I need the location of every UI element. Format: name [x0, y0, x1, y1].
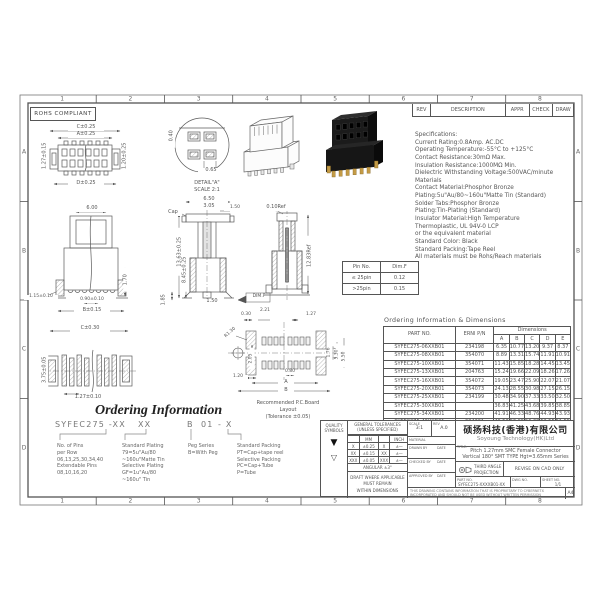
- table-cell: SYFEC275-30XXB01: [384, 402, 456, 410]
- table-cell: 354071: [455, 360, 494, 368]
- dim-label: D±0.25: [68, 181, 104, 187]
- dim-label: 1.50: [200, 299, 224, 305]
- table-cell: 10.77: [509, 343, 524, 351]
- title-label: TITLE:: [457, 445, 467, 449]
- dim-label: C±0.25: [68, 125, 104, 131]
- grid-label: 8: [538, 96, 542, 103]
- table-cell: 39.85: [540, 402, 555, 410]
- table-cell: 22.07: [540, 377, 555, 385]
- table-cell: 21.07: [555, 377, 570, 385]
- dim-label: 1.70: [123, 268, 129, 292]
- quality-open-triangle-icon: ▽: [331, 453, 337, 462]
- text-line: ~160u"Matte Tin: [122, 457, 188, 464]
- angular-tolerance: ANGULAR ±3°: [348, 464, 407, 472]
- approved-by-label: APPROVED BY: [409, 474, 433, 478]
- disclaimer-line2: INCORPORATED AND SHOULD NOT BE USED WITH…: [410, 493, 573, 497]
- table-cell: [455, 402, 494, 410]
- dim-label: 12.83Ref: [307, 236, 313, 276]
- text-line: Standard Color: Black: [415, 239, 575, 247]
- text-line: WITHIN DIMENSIONS: [348, 488, 407, 494]
- table-cell: 0.12: [381, 273, 419, 284]
- table-cell: 8.37: [555, 343, 570, 351]
- table-row: SYFEC275-06XXB012341986.3510.7713.209.37…: [384, 343, 571, 351]
- dim-label: 3.75±0.05: [42, 348, 48, 392]
- table-cell: ±0.05: [359, 457, 378, 464]
- text-line: 08,10,16,20: [57, 470, 121, 477]
- ordering-brackets: [60, 429, 241, 440]
- scale-cell: SCALE 3:1: [408, 421, 432, 437]
- rohs-compliant-badge: ROHS COMPLIANT: [30, 107, 96, 121]
- drawn-by-cell: DRAWN BY DATE: [408, 445, 456, 459]
- table-cell: SYFEC275-13XXB01: [384, 368, 456, 376]
- dim-label: 1.27±0.10: [68, 395, 108, 401]
- text-line: Extendable Pins: [57, 463, 121, 470]
- table-cell: 24.13: [494, 385, 509, 393]
- approval-column: SCALE 3:1 REV A.0 MATERIAL DRAWN BY DATE…: [408, 421, 456, 487]
- table-cell: 37.33: [525, 394, 540, 402]
- table-cell: X: [348, 443, 359, 450]
- table-cell: 28.55: [509, 385, 524, 393]
- table-cell: 13.31: [509, 352, 524, 360]
- quality-header-2: SYMBOLS: [321, 428, 347, 433]
- table-cell: 354073: [455, 385, 494, 393]
- specifications-block: Specifications:Current Rating:0.8Amp. AC…: [415, 132, 575, 262]
- grid-label: C: [22, 346, 26, 353]
- drawing-sheet: ROHS COMPLIANT REV DESCRIPTION APPR CHEC…: [0, 0, 600, 600]
- table-cell: 19.66: [509, 368, 524, 376]
- dim-label: 2.05: [250, 347, 255, 369]
- part-no-header: PART NO.: [384, 327, 456, 344]
- table-cell: SYFEC275-06XXB01: [384, 343, 456, 351]
- table-cell: 27.15: [540, 385, 555, 393]
- dim-col-d: D: [540, 335, 555, 343]
- view-iso-wireframe: [244, 116, 299, 176]
- grid-label: 4: [265, 498, 269, 505]
- dim-label: 1.85: [161, 287, 167, 313]
- table-cell: 26.15: [555, 385, 570, 393]
- text-line: Insulator Material:High Temperature: [415, 216, 575, 224]
- dimf-flag-label: DIM.F: [247, 295, 271, 300]
- dim-label: 2.21: [255, 309, 275, 314]
- text-line: Selective Packing: [237, 457, 307, 464]
- grid-label: 1: [60, 498, 64, 505]
- dims-table-title: Ordering Information & Dimensions: [384, 317, 506, 324]
- inch-header: INCH: [390, 436, 408, 443]
- table-cell: ±—: [390, 443, 408, 450]
- checked-by-cell: CHECKED BY DATE: [408, 459, 456, 473]
- table-cell: X: [378, 443, 390, 450]
- table-cell: 34.90: [509, 394, 524, 402]
- dim-label: 0.65: [198, 168, 224, 174]
- rev-header: REV: [413, 104, 431, 116]
- grid-label: C: [576, 346, 580, 353]
- table-cell: 14.45: [540, 360, 555, 368]
- erni-pn-header: ERNI P/N: [455, 327, 494, 344]
- quality-solid-triangle-icon: ▼: [331, 438, 338, 448]
- draw-header: DRAW: [553, 104, 573, 116]
- dim-label: 1.50: [224, 206, 246, 211]
- tolerances-cell: GENERAL TOLERANCES (UNLESS SPECIFIED) MM…: [348, 421, 408, 498]
- table-cell: 6.35: [494, 343, 509, 351]
- grid-label: B: [22, 247, 26, 254]
- dim-label: 1.20±0.25: [122, 137, 128, 175]
- tolerance-table: MM INCH X±0.25X±—XX±0.15XX±—XXX±0.05XXX±…: [348, 435, 408, 464]
- pin-col-header: Pin No.: [343, 262, 381, 273]
- table-cell: 0.15: [381, 284, 419, 295]
- text-line: Contact Material:Phosphor Bronze: [415, 185, 575, 193]
- table-cell: 9.37: [540, 343, 555, 351]
- dwg-no-label: DWG NO.: [512, 478, 528, 482]
- ordering-code-base: SYFEC275 -XX: [55, 420, 126, 429]
- table-cell: 8.89: [494, 352, 509, 360]
- material-label: MATERIAL: [409, 438, 426, 442]
- table-cell: SYFEC275-16XXB01: [384, 377, 456, 385]
- grid-label: 6: [401, 498, 405, 505]
- date-label: DATE: [437, 446, 446, 450]
- dim-label: B±0.15: [74, 308, 110, 314]
- dim-label: 0.30: [236, 313, 256, 318]
- ordering-block-packing: Standard PackingPT=Cap+tape reelSelectiv…: [237, 443, 307, 477]
- text-line: Plating:5u"Au/80~160u"Matte Tin (Standar…: [415, 193, 575, 201]
- table-cell: 11.43: [494, 360, 509, 368]
- table-cell: XXX: [378, 457, 390, 464]
- part-dimensions-table: PART NO. ERNI P/N Dimensions A B C D E S…: [383, 326, 571, 428]
- revise-note: REVISE ON CAD ONLY: [504, 462, 575, 477]
- table-row: ≤ 25pin0.12: [343, 273, 419, 284]
- dim-label: A±0.25: [68, 132, 104, 138]
- view-detail-a: [175, 118, 229, 172]
- text-line: Solder Tabs:Phosphor Bronze: [415, 201, 575, 209]
- dim-col-a: A: [494, 335, 509, 343]
- dim-label: 6.50: [190, 197, 228, 203]
- text-line: Contact Resistance:30mΩ Max.: [415, 155, 575, 163]
- table-cell: 10.91: [555, 352, 570, 360]
- ordering-code-series: B: [187, 420, 194, 429]
- grid-label: 1: [60, 96, 64, 103]
- revision-strip: REV DESCRIPTION APPR CHECK DRAW: [412, 104, 574, 117]
- dimf-col-header: Dim.F: [381, 262, 419, 273]
- detail-a-scale: SCALE 2:1: [186, 188, 228, 194]
- text-line: B=With Peg: [188, 450, 242, 457]
- dim-label: 5.50: [343, 345, 348, 367]
- table-cell: 30.98: [525, 385, 540, 393]
- grid-label: 7: [470, 96, 474, 103]
- ordering-code-packing: - X: [218, 420, 233, 429]
- table-row: SYFEC275-13XXB0120476315.2419.6622.0918.…: [384, 368, 571, 376]
- text-line: Standard Packing:Tape Reel: [415, 247, 575, 255]
- table-cell: ±—: [390, 450, 408, 457]
- table-cell: 36.83: [494, 402, 509, 410]
- rev-label: REV: [433, 422, 440, 426]
- drawing-title-line2: Vertical 180° SMT TYPE Hgt=3.65mm Series: [456, 455, 575, 462]
- table-cell: 41.25: [509, 402, 524, 410]
- table-cell: 43.68: [525, 402, 540, 410]
- text-line: GF=1u"Au/80: [122, 470, 188, 477]
- dim-label: 1.76: [328, 341, 333, 363]
- dim-label: 0.80: [280, 370, 300, 375]
- cap-label: Cap: [164, 210, 182, 216]
- text-line: Operating Temperature:-55°C to +125°C: [415, 147, 575, 155]
- dim-label: 5.30: [336, 343, 341, 365]
- part-no-row: PART NO. SYFEC275-XXXXB01-XX DWG NO. SHE…: [456, 477, 575, 487]
- dim-label: 0.90±0.10: [74, 298, 110, 303]
- grid-label: 2: [128, 498, 132, 505]
- company-name-en: Soyoung Technology(HK)Ltd: [456, 436, 575, 442]
- table-cell: 48.76: [525, 410, 540, 418]
- text-line: PC=Cap+Tube: [237, 463, 307, 470]
- table-row: SYFEC275-25XXB0123419930.4834.9037.3333.…: [384, 394, 571, 402]
- grid-label: 6: [401, 96, 405, 103]
- grid-label: 5: [333, 96, 337, 103]
- text-line: Materials: [415, 178, 575, 186]
- date-label: DATE: [437, 474, 446, 478]
- text-line: Recommended P.C.Board: [240, 400, 336, 407]
- table-cell: 18.28: [525, 360, 540, 368]
- table-cell: 15.85: [509, 360, 524, 368]
- title-block: QUALITY SYMBOLS ▼ ▽ GENERAL TOLERANCES (…: [320, 420, 574, 497]
- dim-label: 6.00: [76, 206, 108, 212]
- text-line: per Row: [57, 450, 121, 457]
- view-top: [50, 141, 120, 175]
- approved-by-cell: APPROVED BY DATE: [408, 473, 456, 487]
- dim-col-b: B: [509, 335, 524, 343]
- text-line: Peg Series: [188, 443, 242, 450]
- text-line: Current Rating:0.8Amp. AC.DC: [415, 140, 575, 148]
- ordering-block-plating: Standard Plating79=5u"Au/80~160u"Matte T…: [122, 443, 188, 484]
- projection-cell: THIRD ANGLE PROJECTION REVISE ON CAD ONL…: [456, 462, 575, 477]
- table-row: SYFEC275-34XXB0123420041.9146.3348.7644.…: [384, 410, 571, 418]
- text-line: All materials must be Rohs/Reach materia…: [415, 254, 575, 262]
- table-cell: 15.74: [525, 352, 540, 360]
- date-label: DATE: [437, 460, 446, 464]
- table-cell: 19.05: [494, 377, 509, 385]
- third-angle-label-2: PROJECTION: [474, 470, 501, 475]
- drawn-by-label: DRAWN BY: [409, 446, 427, 450]
- table-cell: XX: [348, 450, 359, 457]
- table-row: SYFEC275-08XXB013540708.8913.3115.7411.9…: [384, 352, 571, 360]
- text-line: Insulation Resistance:1000MΩ Min.: [415, 163, 575, 171]
- table-row: SYFEC275-10XXB0135407111.4315.8518.2814.…: [384, 360, 571, 368]
- text-line: Standard Plating: [122, 443, 188, 450]
- rev-cell: REV A.0: [432, 421, 456, 437]
- table-cell: 22.09: [525, 368, 540, 376]
- text-line: 79=5u"Au/80: [122, 450, 188, 457]
- table-cell: 354072: [455, 377, 494, 385]
- table-row: XXX±0.05XXX±—: [348, 457, 408, 464]
- table-cell: 25.90: [525, 377, 540, 385]
- table-row: SYFEC275-16XXB0135407219.0523.4725.9022.…: [384, 377, 571, 385]
- text-line: Selective Plating: [122, 463, 188, 470]
- third-angle-projection-icon: [458, 465, 472, 475]
- material-cell: MATERIAL: [408, 437, 456, 445]
- table-cell: 13.20: [525, 343, 540, 351]
- company-name-cn: 硕扬科技(香港)有限公司: [456, 423, 575, 436]
- disclaimer-row: THIS DRAWING CONTAINS INFORMATION THAT I…: [408, 487, 575, 498]
- table-cell: SYFEC275-25XXB01: [384, 394, 456, 402]
- ordering-block-pins: No. of Pinsper Row06,13,25,30,34,40Exten…: [57, 443, 121, 477]
- view-section-cap: [182, 210, 234, 304]
- table-cell: 234199: [455, 394, 494, 402]
- table-cell: 33.50: [540, 394, 555, 402]
- table-cell: ±0.25: [359, 443, 378, 450]
- checked-by-label: CHECKED BY: [409, 460, 431, 464]
- scale-label: SCALE: [409, 422, 420, 426]
- dim-label: 1.27: [301, 313, 321, 318]
- text-line: No. of Pins: [57, 443, 121, 450]
- mm-header: MM: [359, 436, 378, 443]
- view-front: [54, 216, 128, 298]
- text-line: Dielectric Withstanding Voltage:500VAC/m…: [415, 170, 575, 178]
- dim-label: 1.27±0.15: [42, 137, 48, 175]
- text-line: Plating:Tin-Plating (Standard): [415, 208, 575, 216]
- table-row: >25pin0.15: [343, 284, 419, 295]
- table-cell: >25pin: [343, 284, 381, 295]
- table-cell: SYFEC275-10XXB01: [384, 360, 456, 368]
- table-cell: 30.48: [494, 394, 509, 402]
- detail-a-label: DETAIL"A": [186, 181, 228, 187]
- appr-header: APPR: [506, 104, 530, 116]
- ordering-code-version: 01: [201, 420, 214, 429]
- table-cell: 38.85: [555, 402, 570, 410]
- paper-size: A4: [565, 488, 575, 499]
- pcb-layout-caption: Recommended P.C.BoardLayout(Tolerance ±0…: [240, 400, 336, 420]
- text-line: Thermoplastic, UL 94V-0 LCP: [415, 224, 575, 232]
- quality-symbols-cell: QUALITY SYMBOLS ▼ ▽: [321, 421, 348, 498]
- dim-col-e: E: [555, 335, 570, 343]
- grid-label: D: [22, 444, 27, 451]
- part-no-label: PART NO.: [457, 478, 473, 482]
- grid-label: 4: [265, 96, 269, 103]
- dim-label: 1.20: [228, 375, 248, 380]
- table-cell: 41.91: [494, 410, 509, 418]
- table-cell: SYFEC275-08XXB01: [384, 352, 456, 360]
- table-cell: XXX: [348, 457, 359, 464]
- table-cell: 17.26: [555, 368, 570, 376]
- view-section-2: [264, 208, 310, 300]
- title-cell: TITLE: Pitch 1.27mm SMC Female Connector…: [456, 444, 575, 462]
- dim-label: 1.15±0.10: [24, 295, 58, 300]
- text-line: Standard Packing: [237, 443, 307, 450]
- dim-label: 0.40: [169, 124, 175, 148]
- table-cell: 15.24: [494, 368, 509, 376]
- table-cell: 234198: [455, 343, 494, 351]
- dimensions-header: Dimensions: [494, 327, 571, 335]
- table-cell: SYFEC275-34XXB01: [384, 410, 456, 418]
- table-cell: 234200: [455, 410, 494, 418]
- table-row: X±0.25X±—: [348, 443, 408, 450]
- ordering-block-peg: Peg SeriesB=With Peg: [188, 443, 242, 457]
- rohs-label: ROHS COMPLIANT: [34, 111, 92, 117]
- view-photo-black: [326, 111, 383, 177]
- text-line: Specifications:: [415, 132, 575, 140]
- text-line: 06,13,25,30,34,40: [57, 457, 121, 464]
- text-line: or the equivalent material: [415, 231, 575, 239]
- table-row: SYFEC275-30XXB0136.8341.2543.6839.8538.8…: [384, 402, 571, 410]
- table-row: XX±0.15XX±—: [348, 450, 408, 457]
- table-cell: 23.47: [509, 377, 524, 385]
- grid-label: D: [576, 444, 581, 451]
- dim-label: C±0.30: [70, 326, 110, 332]
- table-cell: 32.50: [555, 394, 570, 402]
- dim-label: A: [278, 380, 294, 386]
- grid-label: B: [576, 247, 580, 254]
- table-cell: 44.93: [540, 410, 555, 418]
- grid-label: 2: [128, 96, 132, 103]
- company-title-column: 硕扬科技(香港)有限公司 Soyoung Technology(HK)Ltd T…: [456, 421, 575, 487]
- table-cell: XX: [378, 450, 390, 457]
- text-line: ~160u" Tin: [122, 477, 188, 484]
- ordering-info-title: Ordering Information: [95, 403, 222, 419]
- grid-label: A: [576, 149, 580, 156]
- view-side: [42, 350, 136, 392]
- draft-note: DRAFT WHERE APPLICABLEMUST REMAINWITHIN …: [348, 472, 407, 494]
- table-cell: 46.33: [509, 410, 524, 418]
- table-cell: 204763: [455, 368, 494, 376]
- table-row: SYFEC275-20XXB0135407324.1328.5530.9827.…: [384, 385, 571, 393]
- table-cell: 11.91: [540, 352, 555, 360]
- table-cell: ±0.15: [359, 450, 378, 457]
- dim-label: 3.05: [190, 204, 228, 210]
- grid-label: A: [22, 149, 26, 156]
- table-cell: 354070: [455, 352, 494, 360]
- ordering-code-plating: XX: [138, 420, 151, 429]
- table-cell: SYFEC275-20XXB01: [384, 385, 456, 393]
- sheet-no-label: SHEET NO.: [542, 478, 560, 482]
- text-line: P=Tube: [237, 470, 307, 477]
- text-line: PT=Cap+tape reel: [237, 450, 307, 457]
- grid-label: 3: [197, 96, 201, 103]
- dim-label: 8.45±0.25: [182, 248, 188, 292]
- dim-label: 0.10Ref: [260, 205, 292, 211]
- tolerance-header-2: (UNLESS SPECIFIED): [348, 427, 407, 432]
- table-cell: ≤ 25pin: [343, 273, 381, 284]
- pin-dimf-table: Pin No. Dim.F ≤ 25pin0.12>25pin0.15: [342, 261, 419, 295]
- text-line: Layout: [240, 407, 336, 414]
- third-angle-label-1: THIRD ANGLE: [474, 464, 501, 469]
- grid-label: 3: [197, 498, 201, 505]
- dim-col-c: C: [525, 335, 540, 343]
- check-header: CHECK: [530, 104, 554, 116]
- table-cell: 13.45: [555, 360, 570, 368]
- table-cell: ±—: [390, 457, 408, 464]
- description-header: DESCRIPTION: [431, 104, 506, 116]
- table-cell: 43.93: [555, 410, 570, 418]
- table-cell: 18.26: [540, 368, 555, 376]
- dim-label: B: [278, 388, 294, 394]
- grid-label: 5: [333, 498, 337, 505]
